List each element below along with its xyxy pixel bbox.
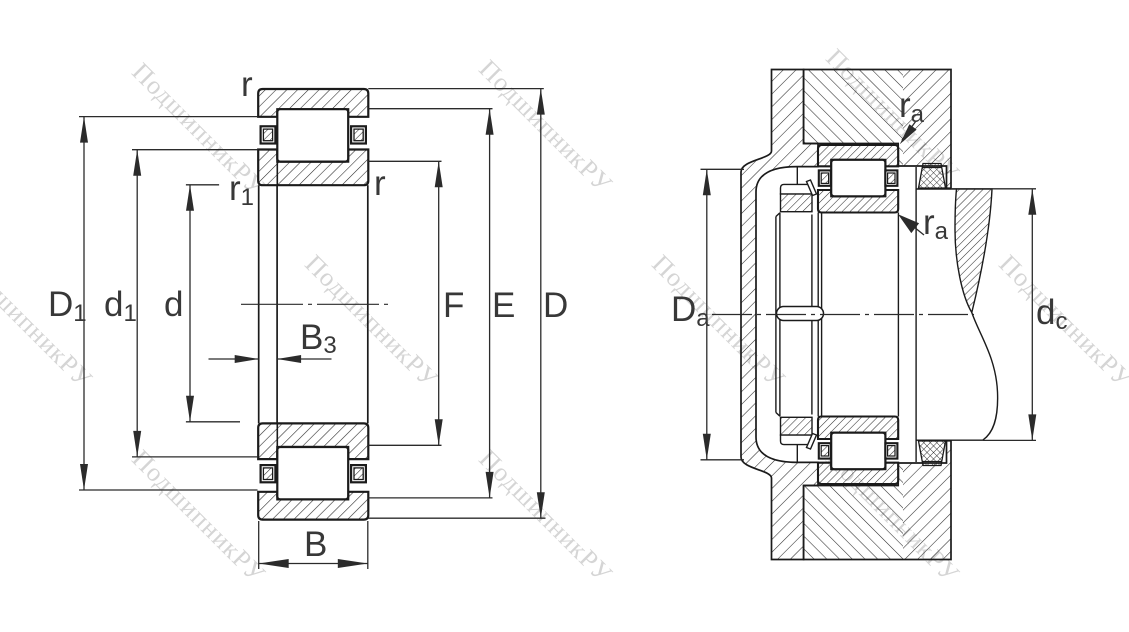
svg-text:r: r (241, 65, 253, 104)
svg-text:d: d (164, 285, 183, 324)
svg-text:F: F (443, 286, 464, 325)
svg-text:r: r (374, 164, 386, 203)
svg-text:B: B (304, 525, 327, 564)
svg-text:E: E (492, 286, 515, 325)
svg-text:D: D (543, 286, 568, 325)
